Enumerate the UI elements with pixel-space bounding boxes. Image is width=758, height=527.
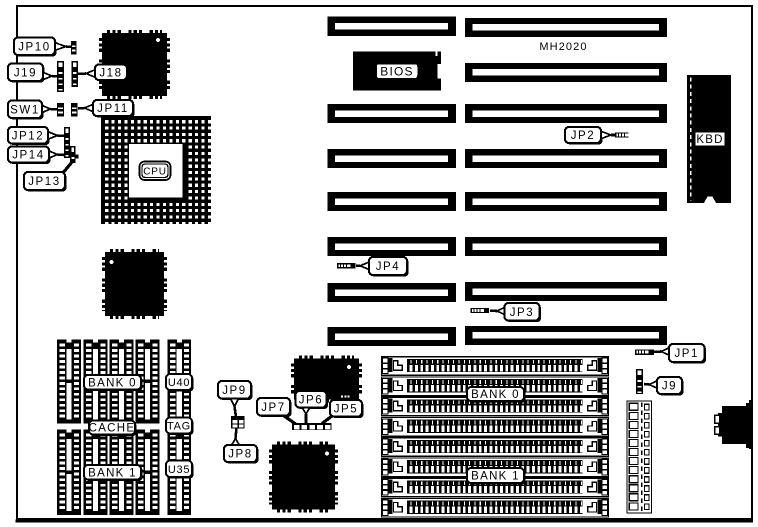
svg-text:BANK 1: BANK 1 bbox=[471, 471, 520, 483]
svg-text:JP11: JP11 bbox=[97, 103, 129, 115]
svg-text:U35: U35 bbox=[168, 464, 190, 476]
svg-text:U40: U40 bbox=[168, 377, 190, 389]
svg-text:JP1: JP1 bbox=[674, 348, 699, 360]
svg-text:JP7: JP7 bbox=[261, 402, 286, 414]
svg-text:BIOS: BIOS bbox=[380, 64, 413, 78]
svg-text:CACHE: CACHE bbox=[89, 423, 136, 435]
svg-text:JP12: JP12 bbox=[12, 130, 45, 142]
svg-text:JP8: JP8 bbox=[228, 449, 253, 461]
svg-text:J9: J9 bbox=[662, 381, 677, 393]
svg-text:BANK 0: BANK 0 bbox=[471, 389, 520, 401]
svg-text:BANK 0: BANK 0 bbox=[88, 377, 137, 389]
svg-text:JP2: JP2 bbox=[571, 130, 596, 142]
svg-text:J19: J19 bbox=[14, 67, 37, 79]
svg-text:BANK 1: BANK 1 bbox=[88, 467, 137, 479]
svg-text:JP13: JP13 bbox=[28, 176, 61, 188]
svg-text:KBD: KBD bbox=[696, 134, 723, 146]
svg-text:JP9: JP9 bbox=[222, 385, 247, 397]
svg-text:JP10: JP10 bbox=[18, 41, 51, 53]
svg-text:JP14: JP14 bbox=[12, 150, 45, 162]
svg-text:J18: J18 bbox=[99, 67, 122, 79]
svg-text:JP3: JP3 bbox=[510, 307, 535, 319]
svg-text:MH2020: MH2020 bbox=[539, 41, 587, 53]
svg-text:CPU: CPU bbox=[143, 167, 167, 178]
svg-text:TAG: TAG bbox=[167, 421, 191, 433]
svg-text:JP6: JP6 bbox=[299, 394, 324, 406]
svg-text:SW1: SW1 bbox=[10, 104, 40, 116]
svg-text:JP4: JP4 bbox=[376, 261, 401, 273]
svg-text:JP5: JP5 bbox=[334, 403, 359, 415]
